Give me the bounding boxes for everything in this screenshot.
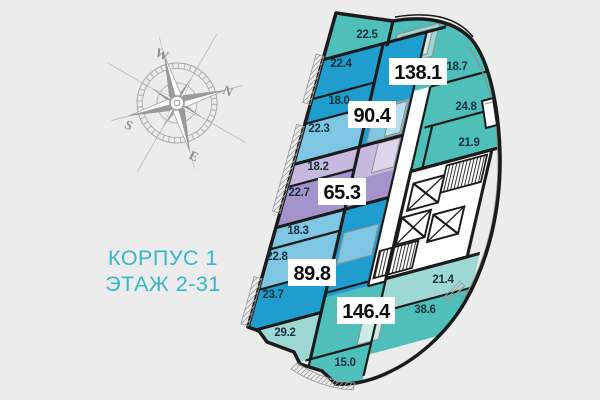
apartment-label-90-4: 90.4	[354, 105, 392, 127]
room-label-18-0: 18.0	[328, 95, 349, 107]
room-label-29-2: 29.2	[274, 327, 295, 339]
room-label-24-8: 24.8	[455, 101, 477, 113]
compass-letter-s: S	[122, 117, 135, 134]
room-label-21-4: 21.4	[432, 274, 454, 286]
building-label: КОРПУС 1	[108, 246, 218, 270]
room-label-18-7: 18.7	[446, 61, 467, 73]
room-label-18-3: 18.3	[287, 225, 308, 237]
compass-letter-w: W	[153, 44, 171, 63]
room-label-23-7: 23.7	[262, 289, 283, 301]
compass-letter-n: N	[220, 82, 235, 100]
apartment-label-146-4: 146.4	[342, 301, 391, 323]
room-label-22-4: 22.4	[330, 58, 352, 70]
room-label-38-6: 38.6	[414, 304, 435, 316]
floor-plan-page: W N S E КОРПУС 1 ЭТАЖ 2-31	[0, 0, 600, 400]
room-label-22-7: 22.7	[288, 187, 309, 199]
floor-plan-figure: W N S E КОРПУС 1 ЭТАЖ 2-31	[0, 0, 600, 400]
room-label-18-2: 18.2	[307, 161, 328, 173]
floor-plate	[202, 0, 548, 400]
apartment-label-65-3: 65.3	[324, 182, 361, 204]
compass-rose: W N S E	[94, 20, 261, 187]
floor-range-label: ЭТАЖ 2-31	[105, 272, 221, 296]
room-label-22-3: 22.3	[308, 123, 329, 135]
room-label-15-0: 15.0	[334, 357, 355, 369]
compass-letter-e: E	[187, 147, 201, 164]
room-label-21-9: 21.9	[458, 137, 479, 149]
apartment-label-138-1: 138.1	[394, 62, 442, 84]
room-label-22-8: 22.8	[266, 251, 288, 263]
apartment-label-89-8: 89.8	[294, 263, 331, 285]
room-label-22-5: 22.5	[356, 29, 378, 41]
